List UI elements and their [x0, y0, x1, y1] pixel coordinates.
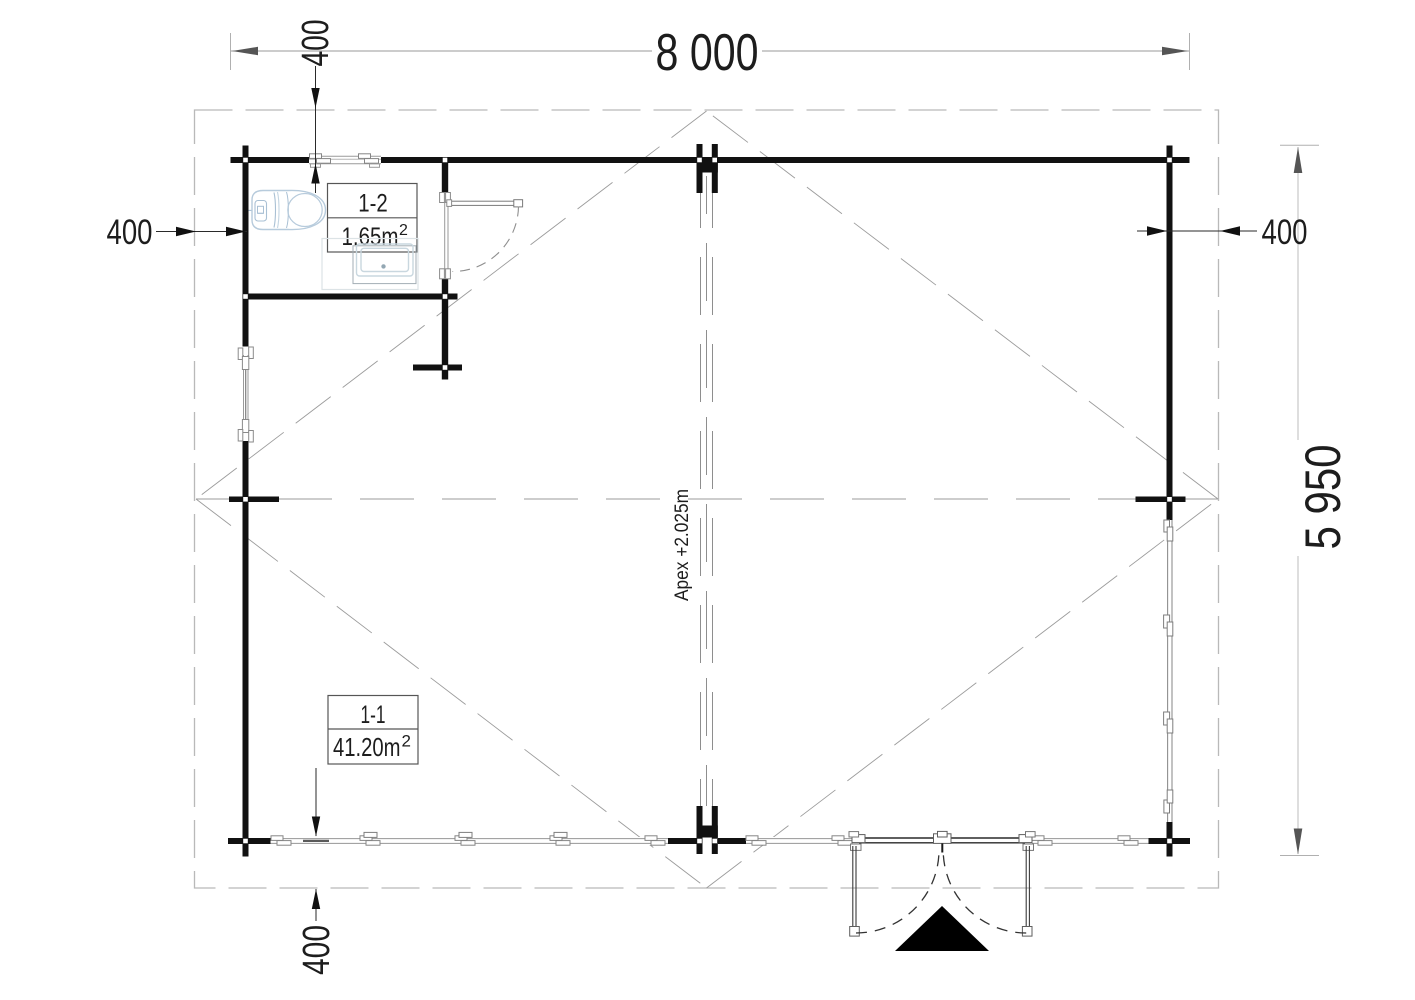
svg-text:5 950: 5 950	[1295, 445, 1351, 550]
svg-text:400: 400	[1262, 213, 1308, 252]
svg-text:8 000: 8 000	[656, 24, 759, 82]
svg-text:1-1: 1-1	[361, 701, 386, 729]
svg-text:Apex +2.025m: Apex +2.025m	[672, 489, 693, 601]
svg-text:41.20m: 41.20m	[333, 732, 401, 762]
svg-text:400: 400	[296, 925, 338, 975]
svg-text:400: 400	[107, 213, 153, 252]
svg-text:1-2: 1-2	[358, 190, 388, 218]
svg-text:2: 2	[399, 222, 408, 239]
svg-text:1.65m: 1.65m	[342, 223, 399, 251]
svg-text:400: 400	[295, 20, 337, 67]
svg-text:2: 2	[402, 732, 411, 751]
